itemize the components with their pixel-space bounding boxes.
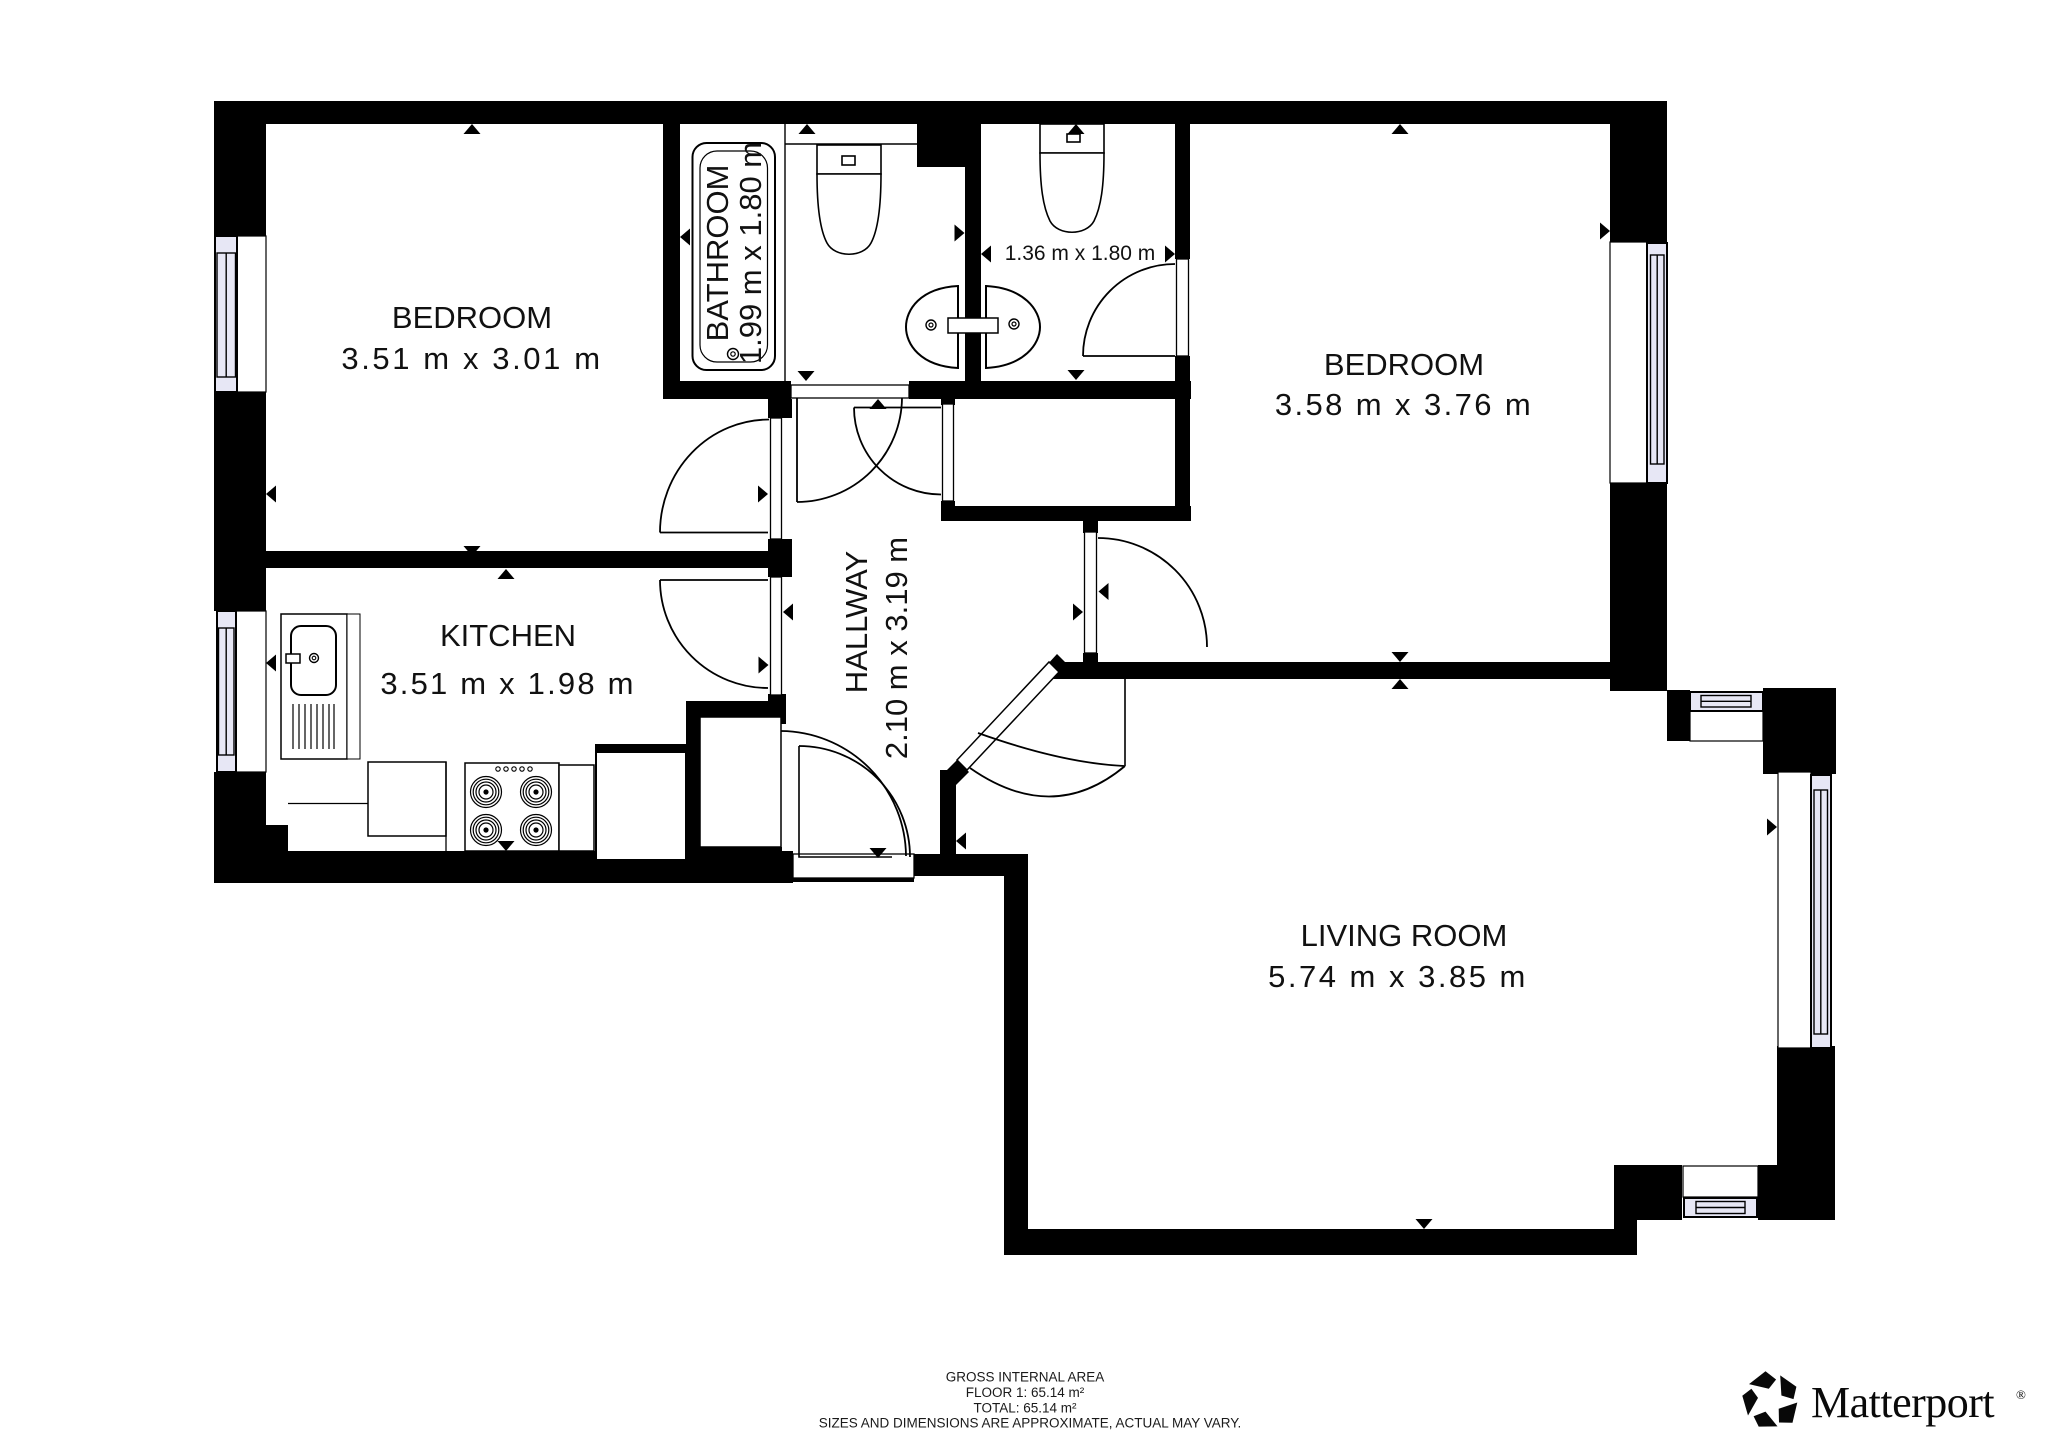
svg-text:5.74 m x 3.85 m: 5.74 m x 3.85 m — [1268, 959, 1528, 994]
svg-text:TOTAL: 65.14 m²: TOTAL: 65.14 m² — [973, 1400, 1077, 1415]
svg-text:BEDROOM: BEDROOM — [1324, 347, 1484, 382]
svg-text:HALLWAY: HALLWAY — [839, 551, 874, 693]
svg-text:KITCHEN: KITCHEN — [440, 618, 576, 653]
svg-text:FLOOR 1: 65.14 m²: FLOOR 1: 65.14 m² — [966, 1385, 1085, 1400]
svg-text:3.51 m x 1.98 m: 3.51 m x 1.98 m — [380, 666, 635, 701]
svg-text:GROSS INTERNAL AREA: GROSS INTERNAL AREA — [946, 1370, 1105, 1385]
svg-text:LIVING ROOM: LIVING ROOM — [1301, 918, 1508, 953]
svg-text:1.99 m x 1.80 m: 1.99 m x 1.80 m — [733, 142, 768, 364]
svg-text:2.10 m x 3.19 m: 2.10 m x 3.19 m — [879, 537, 914, 759]
svg-text:3.51 m x 3.01 m: 3.51 m x 3.01 m — [341, 341, 602, 376]
svg-text:®: ® — [2016, 1387, 2026, 1402]
svg-text:3.58 m x 3.76 m: 3.58 m x 3.76 m — [1275, 387, 1533, 422]
svg-text:BEDROOM: BEDROOM — [392, 300, 552, 335]
svg-text:SIZES AND DIMENSIONS ARE APPRO: SIZES AND DIMENSIONS ARE APPROXIMATE, AC… — [819, 1415, 1242, 1430]
svg-text:Matterport: Matterport — [1811, 1378, 1994, 1427]
svg-text:BATHROOM: BATHROOM — [700, 165, 735, 342]
svg-text:1.36 m x 1.80 m: 1.36 m x 1.80 m — [1005, 242, 1156, 265]
